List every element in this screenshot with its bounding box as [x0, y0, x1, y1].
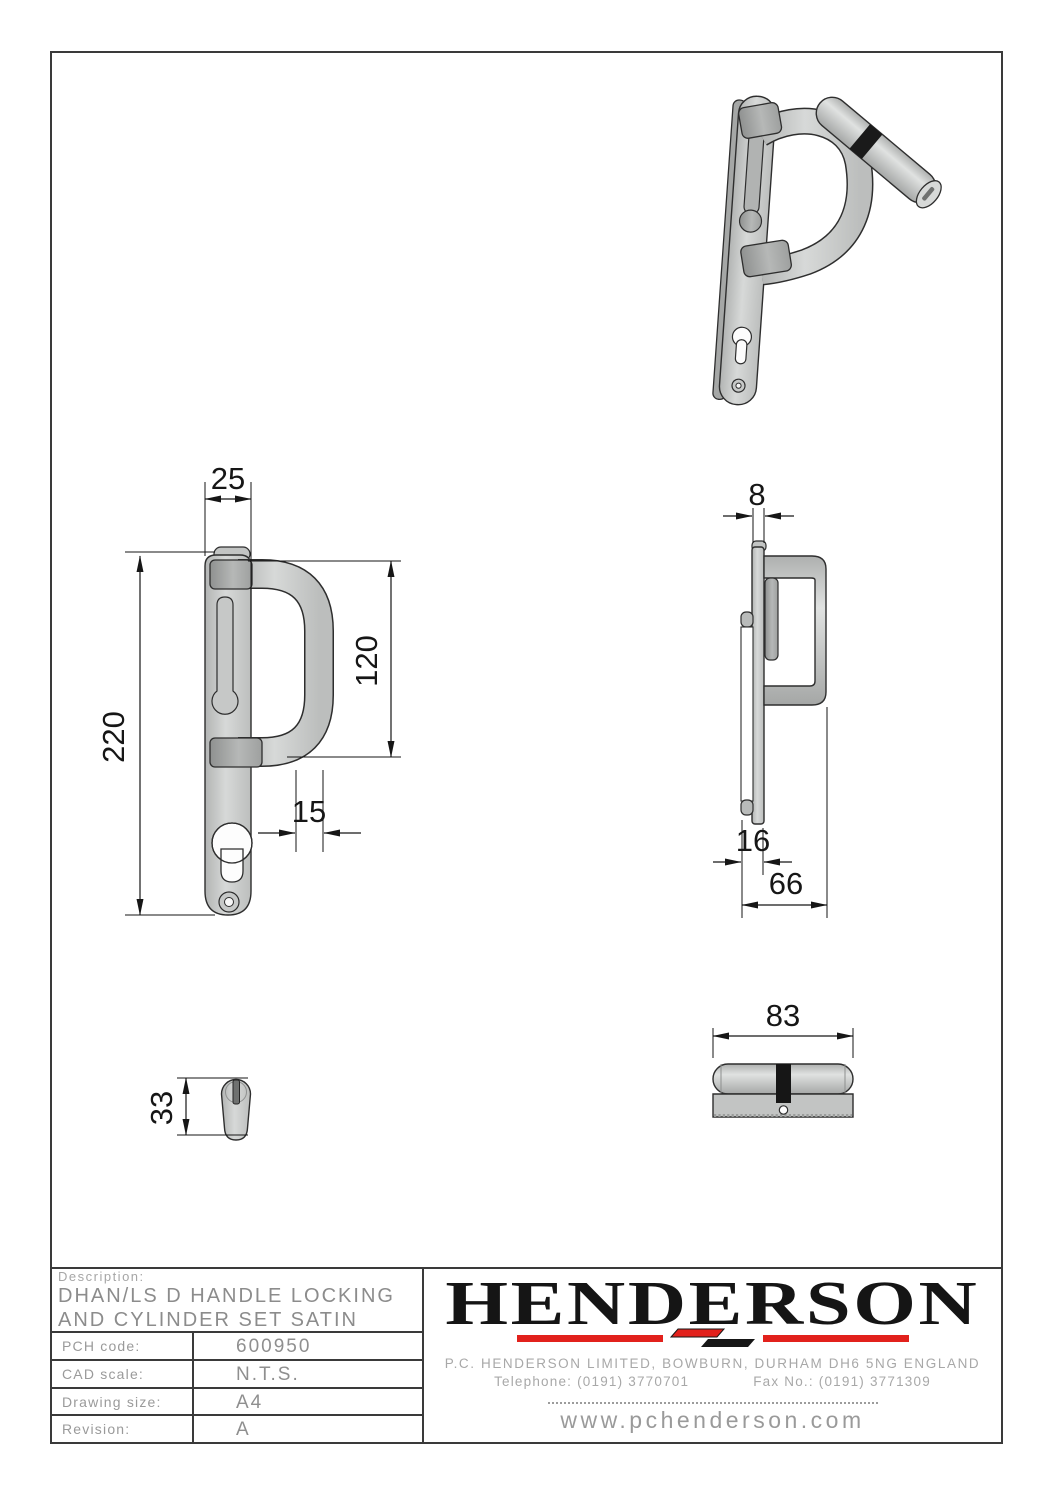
dim-handle-section: 15	[292, 794, 326, 829]
spindle-boss-top	[741, 612, 753, 627]
cylinder-end-view	[222, 1080, 251, 1141]
dim-cylinder-projection: 16	[736, 823, 770, 858]
field-label: PCH code:	[52, 1333, 194, 1359]
isometric-view	[712, 91, 946, 406]
brand-panel: HENDERSON P.C. HENDERSON LIMITED, BOWBUR…	[424, 1269, 1001, 1442]
title-block-fields: Description: DHAN/LS D HANDLE LOCKING AN…	[52, 1269, 424, 1442]
field-row-cad-scale: CAD scale: N.T.S.	[52, 1361, 422, 1389]
spindle-boss-bottom	[741, 800, 753, 815]
title-block: Description: DHAN/LS D HANDLE LOCKING AN…	[50, 1267, 1003, 1444]
field-value: N.T.S.	[194, 1361, 422, 1387]
field-label: Revision:	[52, 1416, 194, 1442]
description-line-1: DHAN/LS D HANDLE LOCKING	[58, 1284, 422, 1308]
telephone-text: Telephone: (0191) 3770701	[494, 1374, 689, 1389]
cylinder-isometric	[810, 91, 946, 213]
dim-cylinder-length: 83	[766, 998, 800, 1033]
field-label: Drawing size:	[52, 1389, 194, 1415]
fixing-hole	[779, 1106, 787, 1114]
dim-handle-height: 120	[349, 635, 384, 687]
field-row-drawing-size: Drawing size: A4	[52, 1389, 422, 1417]
field-value: A4	[194, 1389, 422, 1415]
fax-text: Fax No.: (0191) 3771309	[753, 1374, 931, 1389]
side-view	[741, 541, 826, 824]
description-label: Description:	[58, 1270, 422, 1284]
dim-overall-depth: 66	[769, 866, 803, 901]
key-slot-side	[776, 1064, 791, 1103]
front-view	[205, 547, 319, 915]
contact-numbers: Telephone: (0191) 3770701 Fax No.: (0191…	[424, 1374, 1001, 1389]
description-cell: Description: DHAN/LS D HANDLE LOCKING AN…	[52, 1269, 422, 1333]
field-label: CAD scale:	[52, 1361, 194, 1387]
drawing-sheet: 25 220 120 15 8 16 66	[0, 0, 1058, 1497]
field-row-pch-code: PCH code: 600950	[52, 1333, 422, 1361]
dotted-separator	[548, 1402, 878, 1404]
field-value: A	[194, 1416, 422, 1442]
description-line-2: AND CYLINDER SET SATIN	[58, 1308, 422, 1332]
cylinder-profile	[741, 627, 753, 801]
dim-plate-width: 25	[211, 461, 245, 496]
field-row-revision: Revision: A	[52, 1416, 422, 1442]
dim-plate-thickness: 8	[748, 477, 765, 512]
cylinder-side-view	[713, 1064, 853, 1117]
front-view-dimension-lines	[125, 482, 401, 915]
website-text: www.pchenderson.com	[424, 1407, 1001, 1434]
dim-plate-height: 220	[96, 711, 131, 763]
company-address: P.C. HENDERSON LIMITED, BOWBURN, DURHAM …	[424, 1356, 1001, 1371]
field-value: 600950	[194, 1333, 422, 1359]
dim-cylinder-height: 33	[144, 1091, 179, 1125]
key-slot	[233, 1080, 240, 1104]
henderson-logo: HENDERSON	[446, 1275, 980, 1333]
